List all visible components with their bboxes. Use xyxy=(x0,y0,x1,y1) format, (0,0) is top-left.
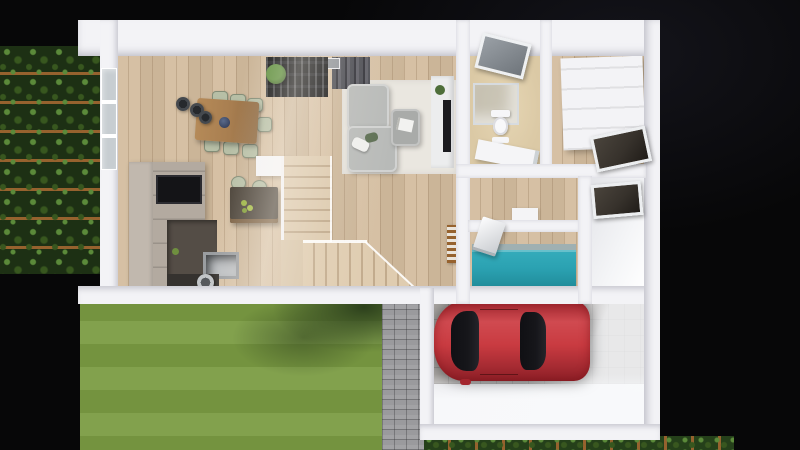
outer-wall-bottom xyxy=(78,286,658,304)
dining-chair xyxy=(257,117,272,132)
toilet-bowl xyxy=(493,117,508,135)
red-car xyxy=(434,301,590,381)
wall-study-utility xyxy=(578,176,592,304)
ivy-green-wall xyxy=(0,46,110,274)
counter-plant-dot xyxy=(172,248,179,255)
pendant-lamp xyxy=(176,97,190,111)
outer-wall-top xyxy=(78,20,658,56)
pendant-lamp xyxy=(199,111,212,124)
floorplan-render-scene xyxy=(0,0,800,450)
stair-flight-upper xyxy=(281,156,332,242)
kitchen-island xyxy=(230,187,278,223)
window-mullion xyxy=(101,100,117,104)
car-rear-window xyxy=(520,312,546,370)
stair-railing xyxy=(303,240,367,243)
toilet-tank xyxy=(491,110,510,117)
fruit-green xyxy=(242,208,247,213)
garage-wall-bottom xyxy=(420,424,660,440)
outer-wall-right xyxy=(644,20,660,440)
fruit-green xyxy=(247,205,253,211)
fruit-green xyxy=(241,200,247,206)
dining-chair xyxy=(223,141,239,155)
utility-dark-window xyxy=(591,181,644,219)
tv-screen xyxy=(443,100,451,152)
window-mullion xyxy=(101,134,117,138)
wall-bathroom-entry xyxy=(540,20,552,168)
table-bowl xyxy=(219,117,230,128)
car-roof-seam xyxy=(480,309,518,375)
console-plant-icon xyxy=(435,85,445,95)
oven-microwave-stack xyxy=(156,175,202,204)
car-windshield xyxy=(451,311,479,371)
potted-plant-icon xyxy=(266,64,286,84)
garage-wall-left xyxy=(420,288,434,440)
study-desk-front xyxy=(472,250,576,290)
wall-living-bathroom xyxy=(456,20,470,304)
sofa-chaise xyxy=(347,84,389,130)
lawn xyxy=(80,298,382,450)
left-facade-window xyxy=(101,68,117,170)
kitchen-tall-cabinet xyxy=(129,162,153,292)
